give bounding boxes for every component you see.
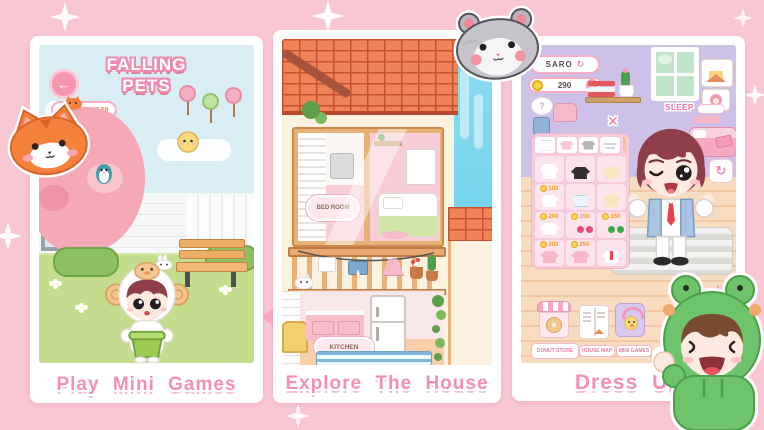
lollipop-pet <box>202 93 219 123</box>
daisy-flower <box>53 279 58 284</box>
striped-rug <box>316 351 432 365</box>
shelf-plant <box>378 134 385 141</box>
card-caption: Play Mini Games <box>30 374 263 396</box>
clothing-thumbnail <box>571 195 590 207</box>
item-price: 200 <box>535 213 564 220</box>
lollipop-pet <box>179 85 196 115</box>
yellow-sofa <box>282 321 308 353</box>
awning <box>537 301 571 312</box>
orange-cat-sticker <box>0 95 96 183</box>
category-tab-white-tee[interactable] <box>535 137 555 153</box>
sparkle-decoration <box>312 0 344 32</box>
category-tab-pink-tee[interactable] <box>557 137 577 153</box>
wardrobe-item[interactable] <box>535 156 564 182</box>
clothing-thumbnail <box>540 195 559 207</box>
window-blind <box>298 133 326 241</box>
store-icon[interactable] <box>537 301 571 341</box>
flower-pot <box>410 267 423 279</box>
shelf <box>374 141 402 146</box>
mini-games-card: FALLING PETS ← POINTS: 1539 <box>30 36 263 403</box>
coin-icon <box>532 80 543 91</box>
house-card: BED ROOM <box>273 30 501 403</box>
card-caption: Explore The House <box>273 373 501 395</box>
item-price: 100 <box>535 185 564 192</box>
lollipop-pet <box>225 87 242 117</box>
duck <box>624 316 638 330</box>
gray-hamster-sticker <box>447 0 547 86</box>
white-board <box>406 149 436 185</box>
penguin-pet <box>95 163 113 185</box>
player-name: SARO <box>546 60 573 69</box>
boy-character[interactable] <box>617 121 725 268</box>
coin-icon <box>602 213 609 220</box>
wardrobe-item[interactable]: 300 <box>535 240 564 266</box>
wardrobe-item[interactable] <box>566 184 595 210</box>
sparkle-decoration <box>286 404 310 428</box>
wall-shelf <box>585 97 641 103</box>
ivy-vine <box>432 295 444 307</box>
sleep-label[interactable]: SLEEP <box>665 103 694 112</box>
sparkle-decoration <box>0 222 22 250</box>
house-map-icon[interactable] <box>579 305 609 339</box>
roof-ivy <box>302 101 320 119</box>
washer <box>330 153 354 179</box>
clothing-thumbnail <box>540 251 559 263</box>
mini-games-label: MINI GAMES <box>616 345 652 357</box>
promo-screenshot: FALLING PETS ← POINTS: 1539 <box>0 0 764 430</box>
wardrobe-item[interactable]: 100 <box>535 184 564 210</box>
item-price: 150 <box>566 213 595 220</box>
back-arrow-icon: ← <box>58 78 71 91</box>
wardrobe-item[interactable] <box>566 156 595 182</box>
coin-icon <box>540 213 547 220</box>
coin-icon <box>540 185 547 192</box>
white-cat <box>294 273 314 289</box>
house-map-label: HOUSE MAP <box>579 345 615 357</box>
category-tab-gray-tee[interactable] <box>579 137 599 153</box>
mini-games-icon[interactable] <box>615 303 645 337</box>
duck-hood-character <box>105 255 189 363</box>
window <box>651 47 699 101</box>
daisy-flower <box>223 285 228 290</box>
hanging-sweater <box>553 103 577 122</box>
daisy-flower <box>79 303 84 308</box>
bed <box>378 193 438 237</box>
sparkle-decoration <box>50 2 80 32</box>
clothing-thumbnail <box>540 164 559 179</box>
clothing-thumbnail <box>608 226 615 233</box>
clothing-thumbnail <box>571 251 590 263</box>
wardrobe-item[interactable]: 150 <box>566 212 595 238</box>
shuffle-icon[interactable]: ↻ <box>577 59 585 70</box>
fridge <box>370 295 406 357</box>
donut <box>546 317 562 333</box>
clothing-thumbnail <box>540 223 559 235</box>
right-wing-wall <box>448 241 492 365</box>
coin-icon <box>571 241 578 248</box>
sparkle-decoration <box>733 8 753 28</box>
frog-hoodie-kid-sticker <box>652 268 764 430</box>
upper-floor-windows: BED ROOM <box>292 127 444 247</box>
laundry-room: BED ROOM <box>298 133 364 241</box>
hanging-shirt <box>318 257 336 272</box>
wardrobe-item[interactable]: 200 <box>535 212 564 238</box>
pillow <box>383 197 403 209</box>
chick-pet <box>177 131 199 153</box>
coin-icon <box>571 213 578 220</box>
round-rug <box>382 231 408 239</box>
side-roof <box>448 207 492 244</box>
falling-pets-game-screenshot: FALLING PETS ← POINTS: 1539 <box>39 45 254 363</box>
clothing-thumbnail <box>571 167 590 179</box>
item-price: 250 <box>566 241 595 248</box>
sparkle-decoration <box>744 84 764 106</box>
sleep-meter <box>697 104 725 114</box>
wardrobe-item[interactable]: 250 <box>566 240 595 266</box>
cactus <box>428 255 436 271</box>
store-label: DONUT STORE <box>531 343 579 359</box>
book-stack <box>588 81 615 86</box>
bench-backrest <box>179 239 245 248</box>
coin-icon <box>540 241 547 248</box>
wardrobe-category-tabs <box>532 134 629 154</box>
wardrobe-grid: 100 200 150 150 <box>532 154 629 268</box>
cactus-plant <box>621 71 630 87</box>
item-price: 300 <box>535 241 564 248</box>
house-picture <box>701 59 733 87</box>
coin-balance: 290 <box>558 81 571 90</box>
clothing-thumbnail <box>577 226 584 233</box>
house-screenshot: BED ROOM <box>282 39 492 365</box>
wardrobe-panel: 100 200 150 150 <box>531 133 630 269</box>
bench-leg <box>231 272 236 287</box>
bedroom-sign: BED ROOM <box>306 195 360 221</box>
thought-bubble: ? <box>531 97 553 115</box>
bedroom <box>370 133 440 241</box>
